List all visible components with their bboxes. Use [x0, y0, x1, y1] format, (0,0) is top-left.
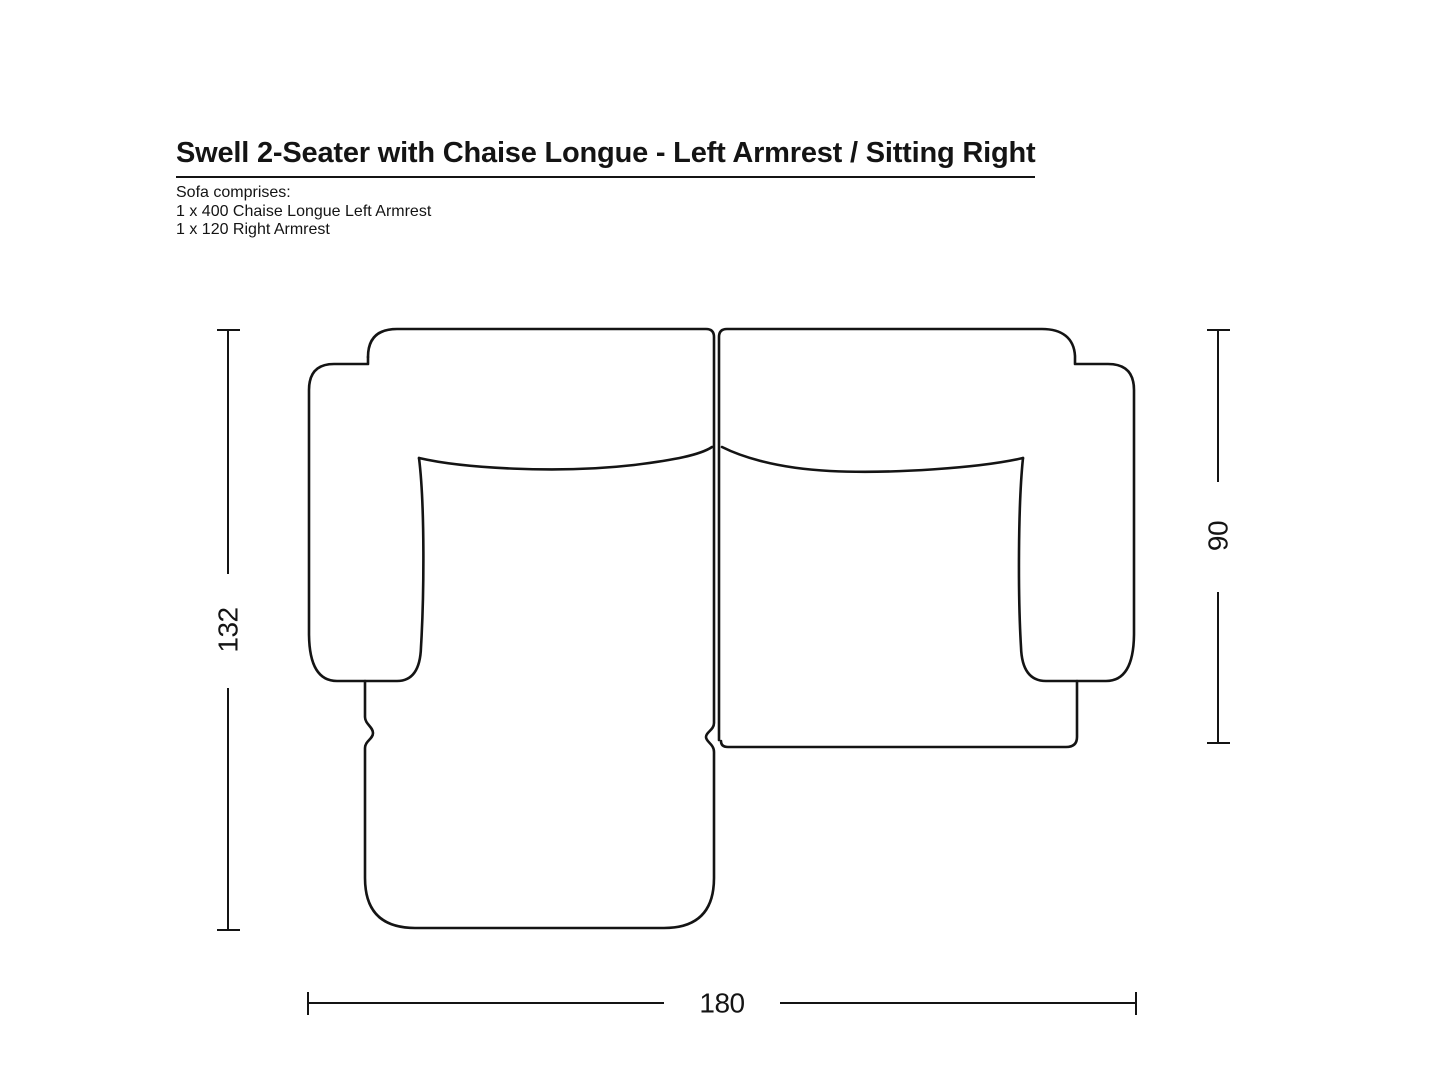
- right-seat-cushion-line: [722, 447, 1023, 472]
- dimension-total-width: 180: [308, 988, 1136, 1019]
- dimension-total-width-label: 180: [699, 988, 744, 1019]
- left-armrest-outline: [309, 357, 423, 681]
- dimension-right-depth: 90: [1203, 330, 1234, 743]
- dimension-right-depth-label: 90: [1203, 521, 1234, 551]
- dimension-total-depth-label: 132: [213, 607, 244, 652]
- right-module-outline: [719, 329, 1134, 740]
- right-module-front-edge: [721, 681, 1077, 747]
- chaise-and-left-module-outline: [365, 329, 714, 928]
- dimension-total-depth: 132: [213, 330, 244, 930]
- sofa-top-view-drawing: 132 90 180: [0, 0, 1445, 1087]
- left-seat-cushion-line: [419, 447, 712, 469]
- product-drawing-page: Swell 2-Seater with Chaise Longue - Left…: [0, 0, 1445, 1087]
